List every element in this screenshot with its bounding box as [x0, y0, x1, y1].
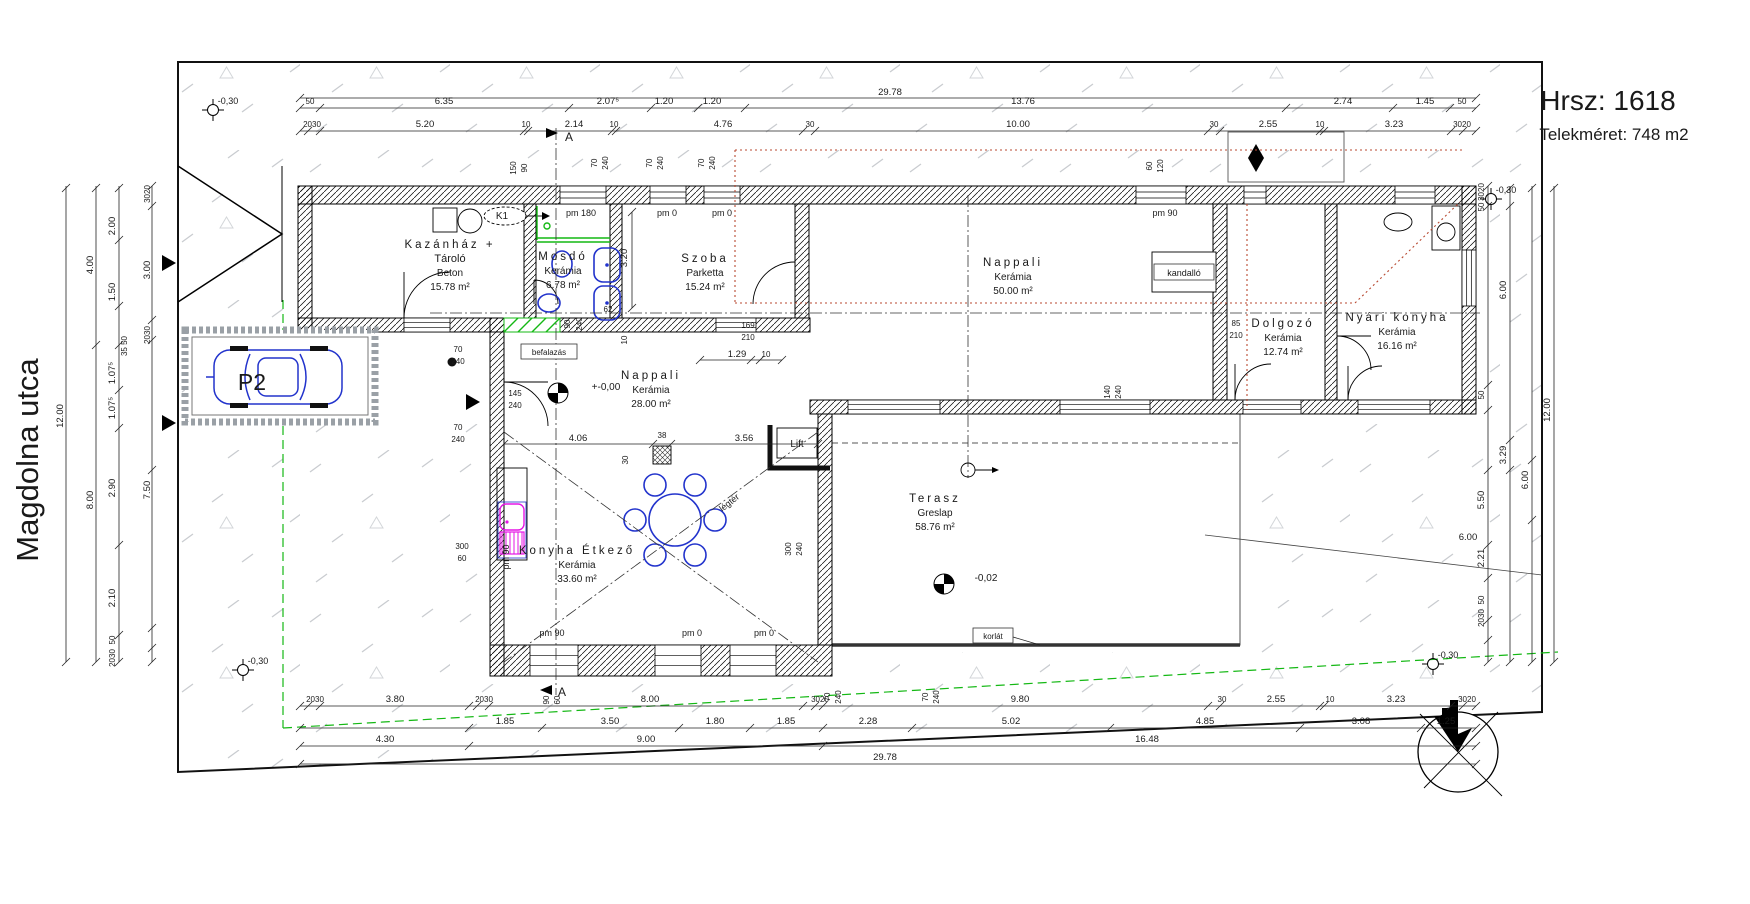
dim-text: 30 — [621, 455, 630, 464]
room-area-szoba: 15.24 m² — [685, 282, 725, 293]
room-area-kazanhaz: 15.78 m² — [430, 282, 470, 293]
dim-text: 300 — [455, 542, 469, 551]
dim-text: 9.00 — [637, 734, 656, 745]
dim-text: 4.76 — [714, 119, 733, 130]
dim-text: 2.28 — [859, 716, 878, 727]
dim-text: 90 — [563, 319, 572, 328]
parapet-label: pm 90 — [501, 544, 511, 569]
dim-text: 2.74 — [1334, 96, 1353, 107]
window — [404, 318, 450, 332]
dim-text: 2.90 — [107, 479, 118, 498]
room-name2-kazanhaz: Tároló — [434, 253, 465, 265]
window — [1462, 250, 1476, 306]
dim-text: 50 — [108, 635, 117, 644]
dim-text: 2030 — [1477, 609, 1486, 627]
survey-level-text: -0,30 — [1496, 185, 1517, 195]
dim-text: 2.10 — [107, 589, 118, 608]
survey-level-text: -0,30 — [218, 96, 239, 106]
room-area-dolgozo: 12.74 m² — [1263, 347, 1303, 358]
parapet-label: pm 0 — [657, 208, 677, 218]
dim-text: 70 — [590, 158, 599, 167]
dim-text: 3020 — [1477, 183, 1486, 201]
dim-text: 62 — [604, 305, 613, 314]
dim-text: 1.29 — [728, 349, 747, 360]
dim-text: 10 — [522, 120, 531, 129]
dim-text: 169 — [741, 321, 755, 330]
dim-text: 4.06 — [569, 433, 588, 444]
dim-text: 145 — [508, 389, 522, 398]
dim-text: 2030 — [303, 120, 321, 129]
room-name-terasz: Terasz — [909, 493, 961, 505]
window — [1244, 186, 1266, 204]
dim-text: 38 — [658, 431, 667, 440]
floorplan-canvas: 29.78506.352.07⁵1.201.2013.762.741.45502… — [0, 0, 1750, 904]
dim-text: 140 — [1103, 385, 1112, 399]
parapet-label: pm 0 — [712, 208, 732, 218]
room-area-mosdo: 6.78 m² — [546, 280, 581, 291]
window — [1060, 400, 1150, 414]
dim-text: 1.20 — [703, 96, 722, 107]
level-marker — [934, 574, 954, 594]
window — [730, 645, 776, 676]
dim-text: 1.07⁵ — [107, 362, 118, 384]
dim-text: 2030 — [306, 695, 324, 704]
dim-text: 6.00 — [1498, 281, 1509, 300]
annotation-lift: Lift — [790, 439, 804, 450]
room-name-nyari-konyha: Nyári konyha — [1345, 312, 1448, 324]
dim-text: 120 — [1156, 159, 1165, 173]
window — [560, 186, 606, 204]
section-letter: A — [558, 685, 566, 699]
dim-text: 10 — [620, 335, 629, 344]
room-name-dolgozo: Dolgozó — [1251, 318, 1314, 330]
room-area-konyha-etkezo: 33.60 m² — [557, 574, 597, 585]
dim-text: 5.02 — [1002, 716, 1021, 727]
survey-level-text: -0,30 — [248, 656, 269, 666]
dim-text: 1.25 — [1437, 716, 1456, 727]
dim-text: 7.50 — [142, 481, 153, 500]
dim-text: 70 — [921, 692, 930, 701]
dim-text: 50 — [1477, 595, 1486, 604]
dim-text: 4.30 — [376, 734, 395, 745]
dim-text: 70 — [454, 345, 463, 354]
room-name-mosdo: Mosdó — [538, 251, 588, 263]
dim-text: 30 — [1218, 695, 1227, 704]
dim-text: 240 — [508, 401, 522, 410]
title-block: Hrsz: 1618 Telekméret: 748 m2 — [1539, 85, 1688, 144]
dim-text: 4.00 — [85, 256, 96, 275]
room-name-nappali-nagy: Nappali — [983, 257, 1043, 269]
dim-text: 1.80 — [706, 716, 725, 727]
dim-text: 6.35 — [435, 96, 454, 107]
room-area-nyari-konyha: 16.16 m² — [1377, 341, 1417, 352]
entry-arrow-icon — [162, 255, 176, 271]
dim-text: 70 — [645, 158, 654, 167]
room-floor-mosdo: Kerámia — [544, 266, 582, 277]
dim-text: 1.45 — [1416, 96, 1435, 107]
dim-text: 13.76 — [1011, 96, 1035, 107]
dim-text: 2030 — [108, 649, 117, 667]
dim-text: 2030 — [475, 695, 493, 704]
dim-text: 150 — [509, 161, 518, 175]
dim-text: 3020 — [143, 185, 152, 203]
dim-text: 8.00 — [641, 694, 660, 705]
dim-text: 240 — [601, 156, 610, 170]
dim-text: 50 — [1477, 390, 1486, 399]
dim-text: 2.55 — [1259, 119, 1278, 130]
parking-stand — [185, 330, 375, 422]
dim-text: 3.20 — [619, 249, 630, 268]
room-floor-konyha-etkezo: Kerámia — [558, 560, 596, 571]
parapet-label: pm 0 — [682, 628, 702, 638]
dim-text: 60 — [458, 554, 467, 563]
annotation-k1: K1 — [496, 211, 509, 222]
dim-text: 3.08 — [1352, 716, 1371, 727]
annotation-befalazas: befalazás — [532, 348, 566, 357]
parcel-number: Hrsz: 1618 — [1540, 85, 1675, 116]
dim-text: 2.55 — [1267, 694, 1286, 705]
dim-text: 10 — [762, 350, 771, 359]
terrace-slab — [832, 414, 1240, 645]
dim-text: 6.00 — [1520, 471, 1531, 490]
parapet-label: pm 90 — [1152, 208, 1177, 218]
dim-text: 35 50 — [120, 335, 129, 356]
dim-text: 3020 — [1458, 695, 1476, 704]
parapet-label: pm 0 — [754, 628, 774, 638]
dim-text: 300 — [784, 542, 793, 556]
dim-text: 90 — [542, 695, 551, 704]
room-floor-terasz: Greslap — [917, 508, 952, 519]
dim-text: 2.00 — [107, 217, 118, 236]
annotation-kandallo: kandalló — [1167, 268, 1201, 278]
dim-text: 50 — [306, 97, 315, 106]
dim-text: 240 — [451, 435, 465, 444]
dim-text: 1.07⁵ — [107, 397, 118, 419]
window — [655, 645, 701, 676]
dim-text: 3.50 — [601, 716, 620, 727]
dim-text: 9.80 — [1011, 694, 1030, 705]
dim-text: 10 — [1326, 695, 1335, 704]
section-letter: A — [565, 130, 573, 144]
dim-text: 12.00 — [1542, 398, 1553, 422]
dim-text: 70 — [697, 158, 706, 167]
level-text: +-0,00 — [592, 382, 621, 393]
parapet-label: pm 180 — [566, 208, 596, 218]
dim-text: 90 — [520, 163, 529, 172]
dim-text: 3.23 — [1387, 694, 1406, 705]
dim-text: 3.00 — [142, 261, 153, 280]
window — [530, 645, 578, 676]
dim-text: 3.23 — [1385, 119, 1404, 130]
window — [650, 186, 686, 204]
pillar — [653, 446, 671, 464]
dim-text: 30 — [806, 120, 815, 129]
parking-label: P2 — [238, 369, 266, 395]
dim-text: 1.20 — [655, 96, 674, 107]
dim-text: 2030 — [143, 326, 152, 344]
dim-text: 8.00 — [85, 491, 96, 510]
room-area-terasz: 58.76 m² — [915, 522, 955, 533]
room-name-szoba: Szoba — [681, 253, 729, 265]
room-name-nappali-kozep: Nappali — [621, 370, 681, 382]
dim-text: 5.20 — [416, 119, 435, 130]
dim-text: 240 — [451, 357, 465, 366]
dim-text: 1.50 — [107, 283, 118, 302]
dim-text: 210 — [741, 333, 755, 342]
room-name-kazanhaz: Kazánház + — [404, 239, 495, 251]
parapet-label: pm 90 — [539, 628, 564, 638]
window — [848, 400, 940, 414]
site-area: Telekméret: 748 m2 — [1539, 125, 1688, 144]
dim-text: 240 — [932, 690, 941, 704]
dim-text: 1.85 — [496, 716, 515, 727]
room-floor-dolgozo: Kerámia — [1264, 333, 1302, 344]
dim-text: 30 — [1210, 120, 1219, 129]
annotation-korlat: korlát — [983, 632, 1003, 641]
dim-text: 50 — [1477, 202, 1486, 211]
dim-text: 70 — [823, 692, 832, 701]
room-floor-kazanhaz: Beton — [437, 268, 463, 279]
level-text: -0,02 — [975, 573, 998, 584]
room-floor-nappali-kozep: Kerámia — [632, 385, 670, 396]
room-area-nappali-nagy: 50.00 m² — [993, 286, 1033, 297]
dim-text: 12.00 — [55, 404, 66, 428]
dim-text: 6.00 — [1459, 532, 1478, 543]
dim-text: 10 — [1316, 120, 1325, 129]
dim-text: 70 — [454, 423, 463, 432]
dim-text: 2.14 — [565, 119, 584, 130]
dim-text: 240 — [834, 690, 843, 704]
dim-text: 2.07⁵ — [597, 96, 619, 107]
dim-text: 2.21 — [1476, 549, 1487, 568]
dim-text: 1.85 — [777, 716, 796, 727]
dim-text: 16.48 — [1135, 734, 1159, 745]
dim-text: 29.78 — [878, 87, 902, 98]
dim-text: 4.85 — [1196, 716, 1215, 727]
window — [1243, 400, 1301, 414]
dim-text: 210 — [1229, 331, 1243, 340]
dim-text: 240 — [656, 156, 665, 170]
dim-text: 240 — [575, 317, 584, 331]
dim-text: 3.80 — [386, 694, 405, 705]
room-area-nappali-kozep: 28.00 m² — [631, 399, 671, 410]
dim-text: 240 — [795, 542, 804, 556]
window — [1358, 400, 1430, 414]
room-name-konyha-etkezo: Konyha Étkező — [519, 544, 635, 557]
room-floor-szoba: Parketta — [686, 268, 724, 279]
street-name: Magdolna utca — [10, 358, 45, 562]
dim-text: 60 — [1145, 161, 1154, 170]
dim-text: 240 — [708, 156, 717, 170]
dim-text: 10.00 — [1006, 119, 1030, 130]
dim-text: 85 — [1232, 319, 1241, 328]
dim-text: 29.78 — [873, 752, 897, 763]
dim-text: 5.50 — [1476, 491, 1487, 510]
window — [1136, 186, 1186, 204]
dim-text: 50 — [1458, 97, 1467, 106]
survey-level-text: -0,30 — [1438, 650, 1459, 660]
level-marker — [548, 383, 568, 403]
window — [1395, 186, 1435, 204]
dim-text: 3.56 — [735, 433, 754, 444]
entry-arrow-icon — [162, 415, 176, 431]
dim-text: 3020 — [1453, 120, 1471, 129]
dim-text: 10 — [610, 120, 619, 129]
dim-text: 240 — [1114, 385, 1123, 399]
room-floor-nappali-nagy: Kerámia — [994, 272, 1032, 283]
room-floor-nyari-konyha: Kerámia — [1378, 327, 1416, 338]
dim-text: 3.29 — [1498, 446, 1509, 465]
